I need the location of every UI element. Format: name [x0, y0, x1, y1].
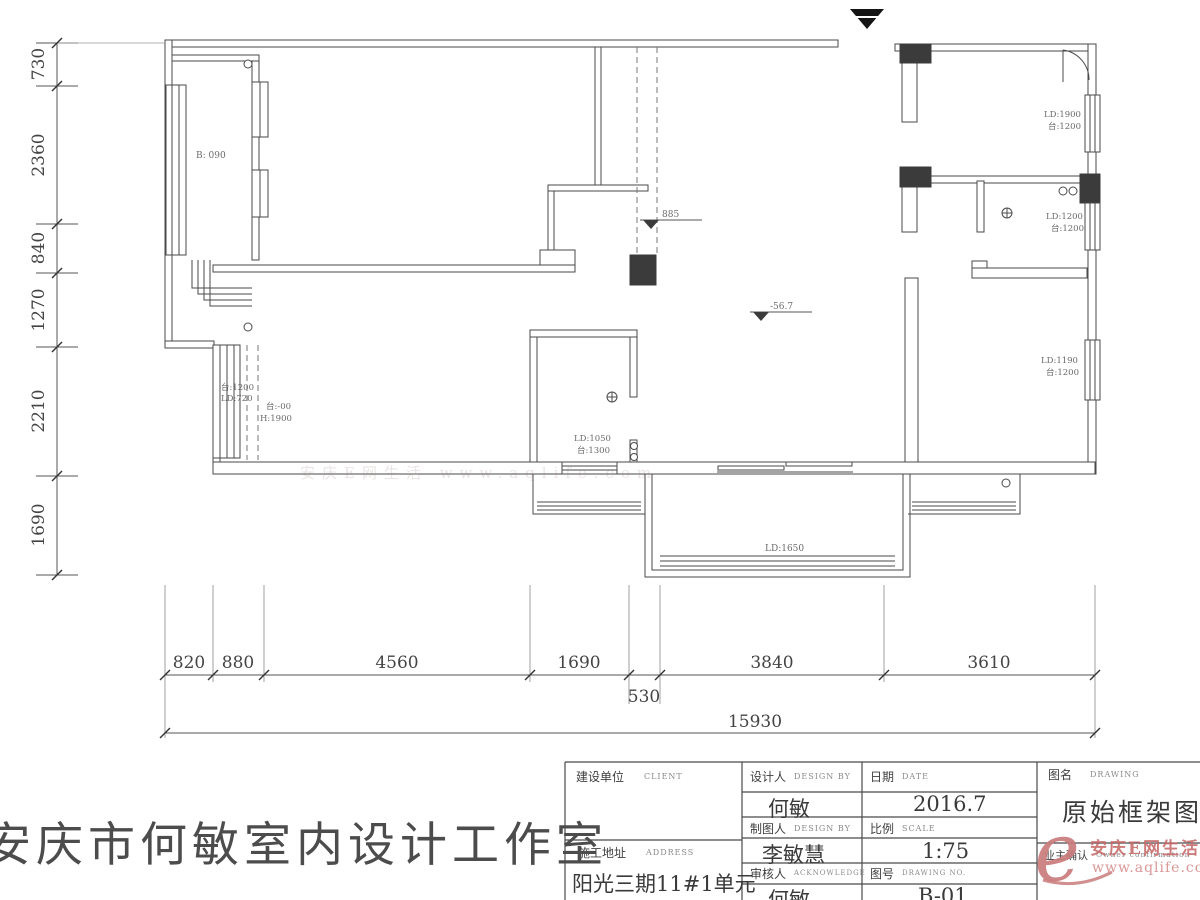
- dim-bottom-4560: 4560: [375, 653, 418, 673]
- level-label-2: -56.7: [770, 302, 793, 312]
- date-value: 2016.7: [913, 792, 986, 816]
- dim-left-2210: 2210: [29, 389, 49, 432]
- drawing-no-value: B-01: [918, 884, 968, 900]
- right-window2-label-1: LD:1200: [1046, 212, 1083, 222]
- bath-window-label-1: LD:1050: [574, 434, 611, 444]
- floorplan-sheet: 730 2360 840 1270 2210 1690 820 880 4560…: [0, 0, 1200, 900]
- drawing-no-label: 图号: [870, 865, 894, 882]
- scale-sublabel: SCALE: [902, 824, 936, 833]
- drafter-label: 制图人: [750, 820, 786, 837]
- bay-label: B: 090: [196, 151, 226, 161]
- scale-label: 比例: [870, 820, 894, 837]
- watermark-logo: e: [1028, 804, 1085, 900]
- dim-left-1270: 1270: [29, 288, 49, 331]
- dim-left-730: 730: [29, 48, 49, 80]
- right-window3-label-1: LD:1190: [1041, 356, 1078, 366]
- bath-window-label-2: 台:1300: [577, 445, 610, 456]
- dim-bottom-1690: 1690: [557, 653, 600, 673]
- drawing-name-sublabel: DRAWING: [1090, 770, 1140, 779]
- north-arrow: [850, 9, 884, 29]
- drawing-no-sublabel: DRAWING NO.: [902, 869, 966, 877]
- designer-value: 何敏: [768, 793, 810, 823]
- right-window1-label-2: 台:1200: [1048, 121, 1081, 132]
- designer-sublabel: DESIGN BY: [794, 772, 851, 781]
- right-window1-label-1: LD:1900: [1044, 110, 1081, 120]
- dim-left-1690: 1690: [29, 503, 49, 546]
- left-window-label-1: 台:1200: [221, 382, 254, 393]
- right-window2-label-2: 台:1200: [1051, 223, 1084, 234]
- scale-value: 1:75: [922, 839, 969, 863]
- dim-bottom-530: 530: [628, 687, 660, 707]
- drafter-sublabel: DESIGN BY: [794, 824, 851, 833]
- studio-name: 安庆市何敏室内设计工作室: [0, 806, 608, 875]
- right-window3-label-2: 台:1200: [1046, 367, 1079, 378]
- dim-bottom-880: 880: [222, 653, 254, 673]
- client-sublabel: CLIENT: [644, 772, 683, 781]
- dim-left-2360: 2360: [29, 133, 49, 176]
- left-window-label-2: LD:720: [221, 394, 253, 404]
- auditor-value: 何敏: [768, 884, 810, 900]
- drawing-name-label: 图名: [1048, 766, 1072, 783]
- dim-bottom-820: 820: [173, 653, 205, 673]
- dim-bottom-3610: 3610: [967, 653, 1010, 673]
- client-label: 建设单位: [576, 768, 624, 785]
- designer-label: 设计人: [750, 768, 786, 785]
- dim-left-840: 840: [29, 232, 49, 264]
- date-sublabel: DATE: [902, 772, 929, 781]
- left-door-label-2: H:1900: [260, 414, 292, 424]
- dim-total-15930: 15930: [728, 712, 782, 732]
- door-hinge-circles: [244, 60, 1077, 461]
- dimension-ticks: [52, 38, 1100, 738]
- balcony-door-label: LD:1650: [765, 544, 804, 554]
- left-door-label-1: 台:-00: [266, 401, 291, 412]
- faint-watermark: 安庆E网生活 www.aqlife.com: [300, 462, 658, 483]
- door-swing-arc: [1063, 50, 1089, 82]
- address-sublabel: ADDRESS: [646, 848, 694, 857]
- dimension-lines: [36, 43, 1095, 738]
- floorplan-canvas: 730 2360 840 1270 2210 1690 820 880 4560…: [0, 0, 1200, 900]
- watermark-brand: 安庆E网生活: [1090, 834, 1200, 859]
- date-label: 日期: [870, 768, 894, 785]
- auditor-sublabel: ACKNOWLEDGE: [794, 869, 866, 877]
- watermark-url: www.aqlife.com: [1092, 860, 1200, 876]
- level-label-1: 885: [662, 210, 679, 220]
- auditor-label: 审核人: [750, 865, 786, 882]
- drawing-name-value: 原始框架图: [1062, 793, 1200, 829]
- drain-symbols: [607, 208, 1012, 402]
- south-balcony: [533, 474, 1020, 577]
- structural-columns: [630, 44, 1100, 285]
- dim-bottom-3840: 3840: [750, 653, 793, 673]
